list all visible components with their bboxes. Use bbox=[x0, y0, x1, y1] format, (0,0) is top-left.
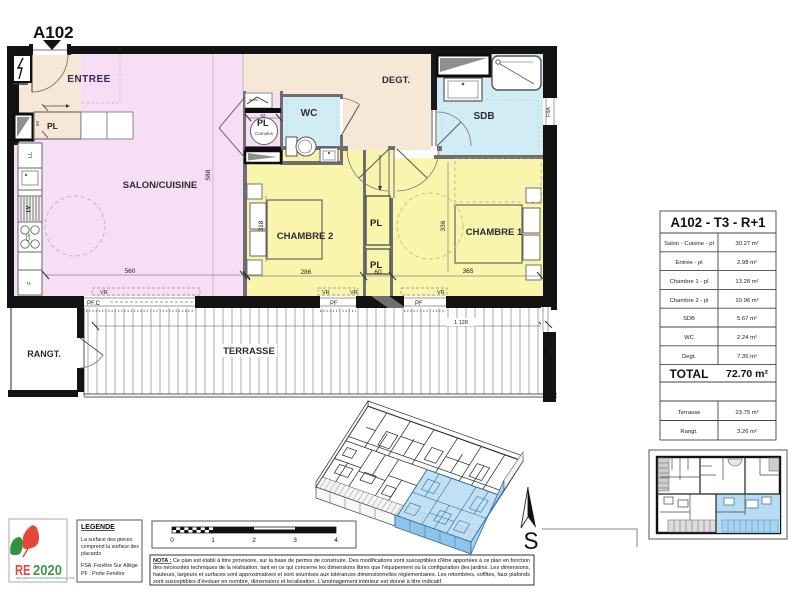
svg-text:TERRASSE: TERRASSE bbox=[223, 346, 275, 357]
svg-text:4: 4 bbox=[334, 537, 338, 544]
svg-text:62: 62 bbox=[260, 113, 266, 118]
svg-text:365: 365 bbox=[463, 268, 474, 275]
svg-text:LV: LV bbox=[26, 205, 32, 212]
svg-text:PF : Porte Fenêtre: PF : Porte Fenêtre bbox=[81, 571, 125, 577]
svg-text:Terrasse: Terrasse bbox=[678, 410, 701, 416]
svg-text:comprend la surface des: comprend la surface des bbox=[81, 544, 139, 550]
svg-text:DEGT.: DEGT. bbox=[382, 75, 410, 86]
svg-text:2.98 m²: 2.98 m² bbox=[737, 260, 757, 266]
svg-text:7.35 m²: 7.35 m² bbox=[737, 354, 757, 360]
svg-text:Chambre 1 - pl: Chambre 1 - pl bbox=[670, 279, 709, 285]
svg-text:30.27 m²: 30.27 m² bbox=[735, 241, 758, 247]
svg-text:Cumulus: Cumulus bbox=[255, 131, 274, 136]
svg-text:5.67 m²: 5.67 m² bbox=[737, 316, 757, 322]
svg-text:CE: CE bbox=[26, 233, 32, 241]
svg-text:72.70 m²: 72.70 m² bbox=[726, 368, 769, 380]
svg-text:WC: WC bbox=[301, 108, 318, 119]
svg-text:588: 588 bbox=[205, 169, 212, 180]
svg-text:Rangt.: Rangt. bbox=[680, 429, 698, 435]
svg-text:13.28 m²: 13.28 m² bbox=[735, 279, 758, 285]
svg-text:Entrée - pl: Entrée - pl bbox=[675, 260, 702, 266]
svg-text:LEGENDE: LEGENDE bbox=[81, 524, 115, 531]
svg-text:VR: VR bbox=[322, 290, 330, 296]
svg-text:LL: LL bbox=[28, 152, 34, 158]
svg-text:1 128: 1 128 bbox=[454, 320, 468, 326]
svg-text:286: 286 bbox=[301, 269, 312, 276]
svg-text:WC: WC bbox=[684, 335, 695, 341]
svg-text:FSA :Fenêtre Sur Allège: FSA :Fenêtre Sur Allège bbox=[81, 563, 138, 569]
svg-text:VR: VR bbox=[100, 290, 108, 296]
svg-text:CHAMBRE 1: CHAMBRE 1 bbox=[466, 227, 523, 238]
svg-text:Salon - Cuisine - pl: Salon - Cuisine - pl bbox=[664, 241, 714, 247]
svg-text:A102: A102 bbox=[33, 23, 74, 42]
svg-text:Degt.: Degt. bbox=[682, 354, 696, 360]
svg-text:ENTREE: ENTREE bbox=[67, 74, 111, 85]
svg-text:RANGT.: RANGT. bbox=[27, 349, 61, 359]
svg-text:560: 560 bbox=[125, 268, 136, 275]
svg-text:F8A: F8A bbox=[546, 107, 552, 117]
svg-text:placards: placards bbox=[81, 551, 101, 557]
svg-text:60: 60 bbox=[35, 120, 40, 126]
svg-text:La surface des pieces: La surface des pieces bbox=[81, 537, 133, 543]
svg-text:10.96 m²: 10.96 m² bbox=[735, 298, 758, 304]
svg-text:CHAMBRE 2: CHAMBRE 2 bbox=[277, 231, 333, 242]
svg-text:sont susceptibles d'évoluer en: sont susceptibles d'évoluer en nombre, d… bbox=[153, 579, 441, 585]
svg-text:PL: PL bbox=[370, 218, 382, 229]
svg-text:23.75 m²: 23.75 m² bbox=[735, 410, 758, 416]
svg-text:S: S bbox=[524, 528, 539, 555]
svg-text:hauteurs, largeurs et surfaces: hauteurs, largeurs et surfaces sont appr… bbox=[153, 572, 530, 578]
svg-text:318: 318 bbox=[258, 220, 265, 231]
svg-text:0: 0 bbox=[170, 537, 174, 544]
svg-text:SDB: SDB bbox=[473, 111, 494, 122]
svg-text:2: 2 bbox=[252, 537, 256, 544]
svg-text:VR: VR bbox=[350, 290, 358, 296]
svg-text:NOTA : Ce plan est établi à ti: NOTA : Ce plan est établi à titre provis… bbox=[153, 558, 530, 564]
svg-text:210: 210 bbox=[548, 347, 554, 356]
svg-text:SDB: SDB bbox=[683, 316, 695, 322]
svg-text:3: 3 bbox=[293, 537, 297, 544]
svg-text:PL: PL bbox=[257, 118, 269, 128]
svg-text:des nécessités techniques de l: des nécessités techniques de la réalisat… bbox=[153, 565, 530, 571]
svg-text:3.26 m²: 3.26 m² bbox=[737, 429, 757, 435]
svg-text:1: 1 bbox=[211, 537, 215, 544]
svg-text:60: 60 bbox=[374, 269, 382, 276]
svg-text:336: 336 bbox=[440, 220, 447, 231]
svg-text:PF: PF bbox=[330, 301, 338, 307]
svg-text:PF.C: PF.C bbox=[87, 301, 101, 307]
svg-text:Chambre 2 - pl: Chambre 2 - pl bbox=[670, 298, 709, 304]
svg-text:PL: PL bbox=[47, 121, 58, 131]
svg-text:A102 - T3 - R+1: A102 - T3 - R+1 bbox=[671, 215, 766, 230]
svg-text:VR: VR bbox=[437, 290, 445, 296]
svg-text:PF: PF bbox=[415, 301, 423, 307]
svg-text:TOTAL: TOTAL bbox=[670, 367, 709, 381]
svg-text:2.24 m²: 2.24 m² bbox=[737, 335, 757, 341]
svg-text:SALON/CUISINE: SALON/CUISINE bbox=[123, 180, 197, 191]
